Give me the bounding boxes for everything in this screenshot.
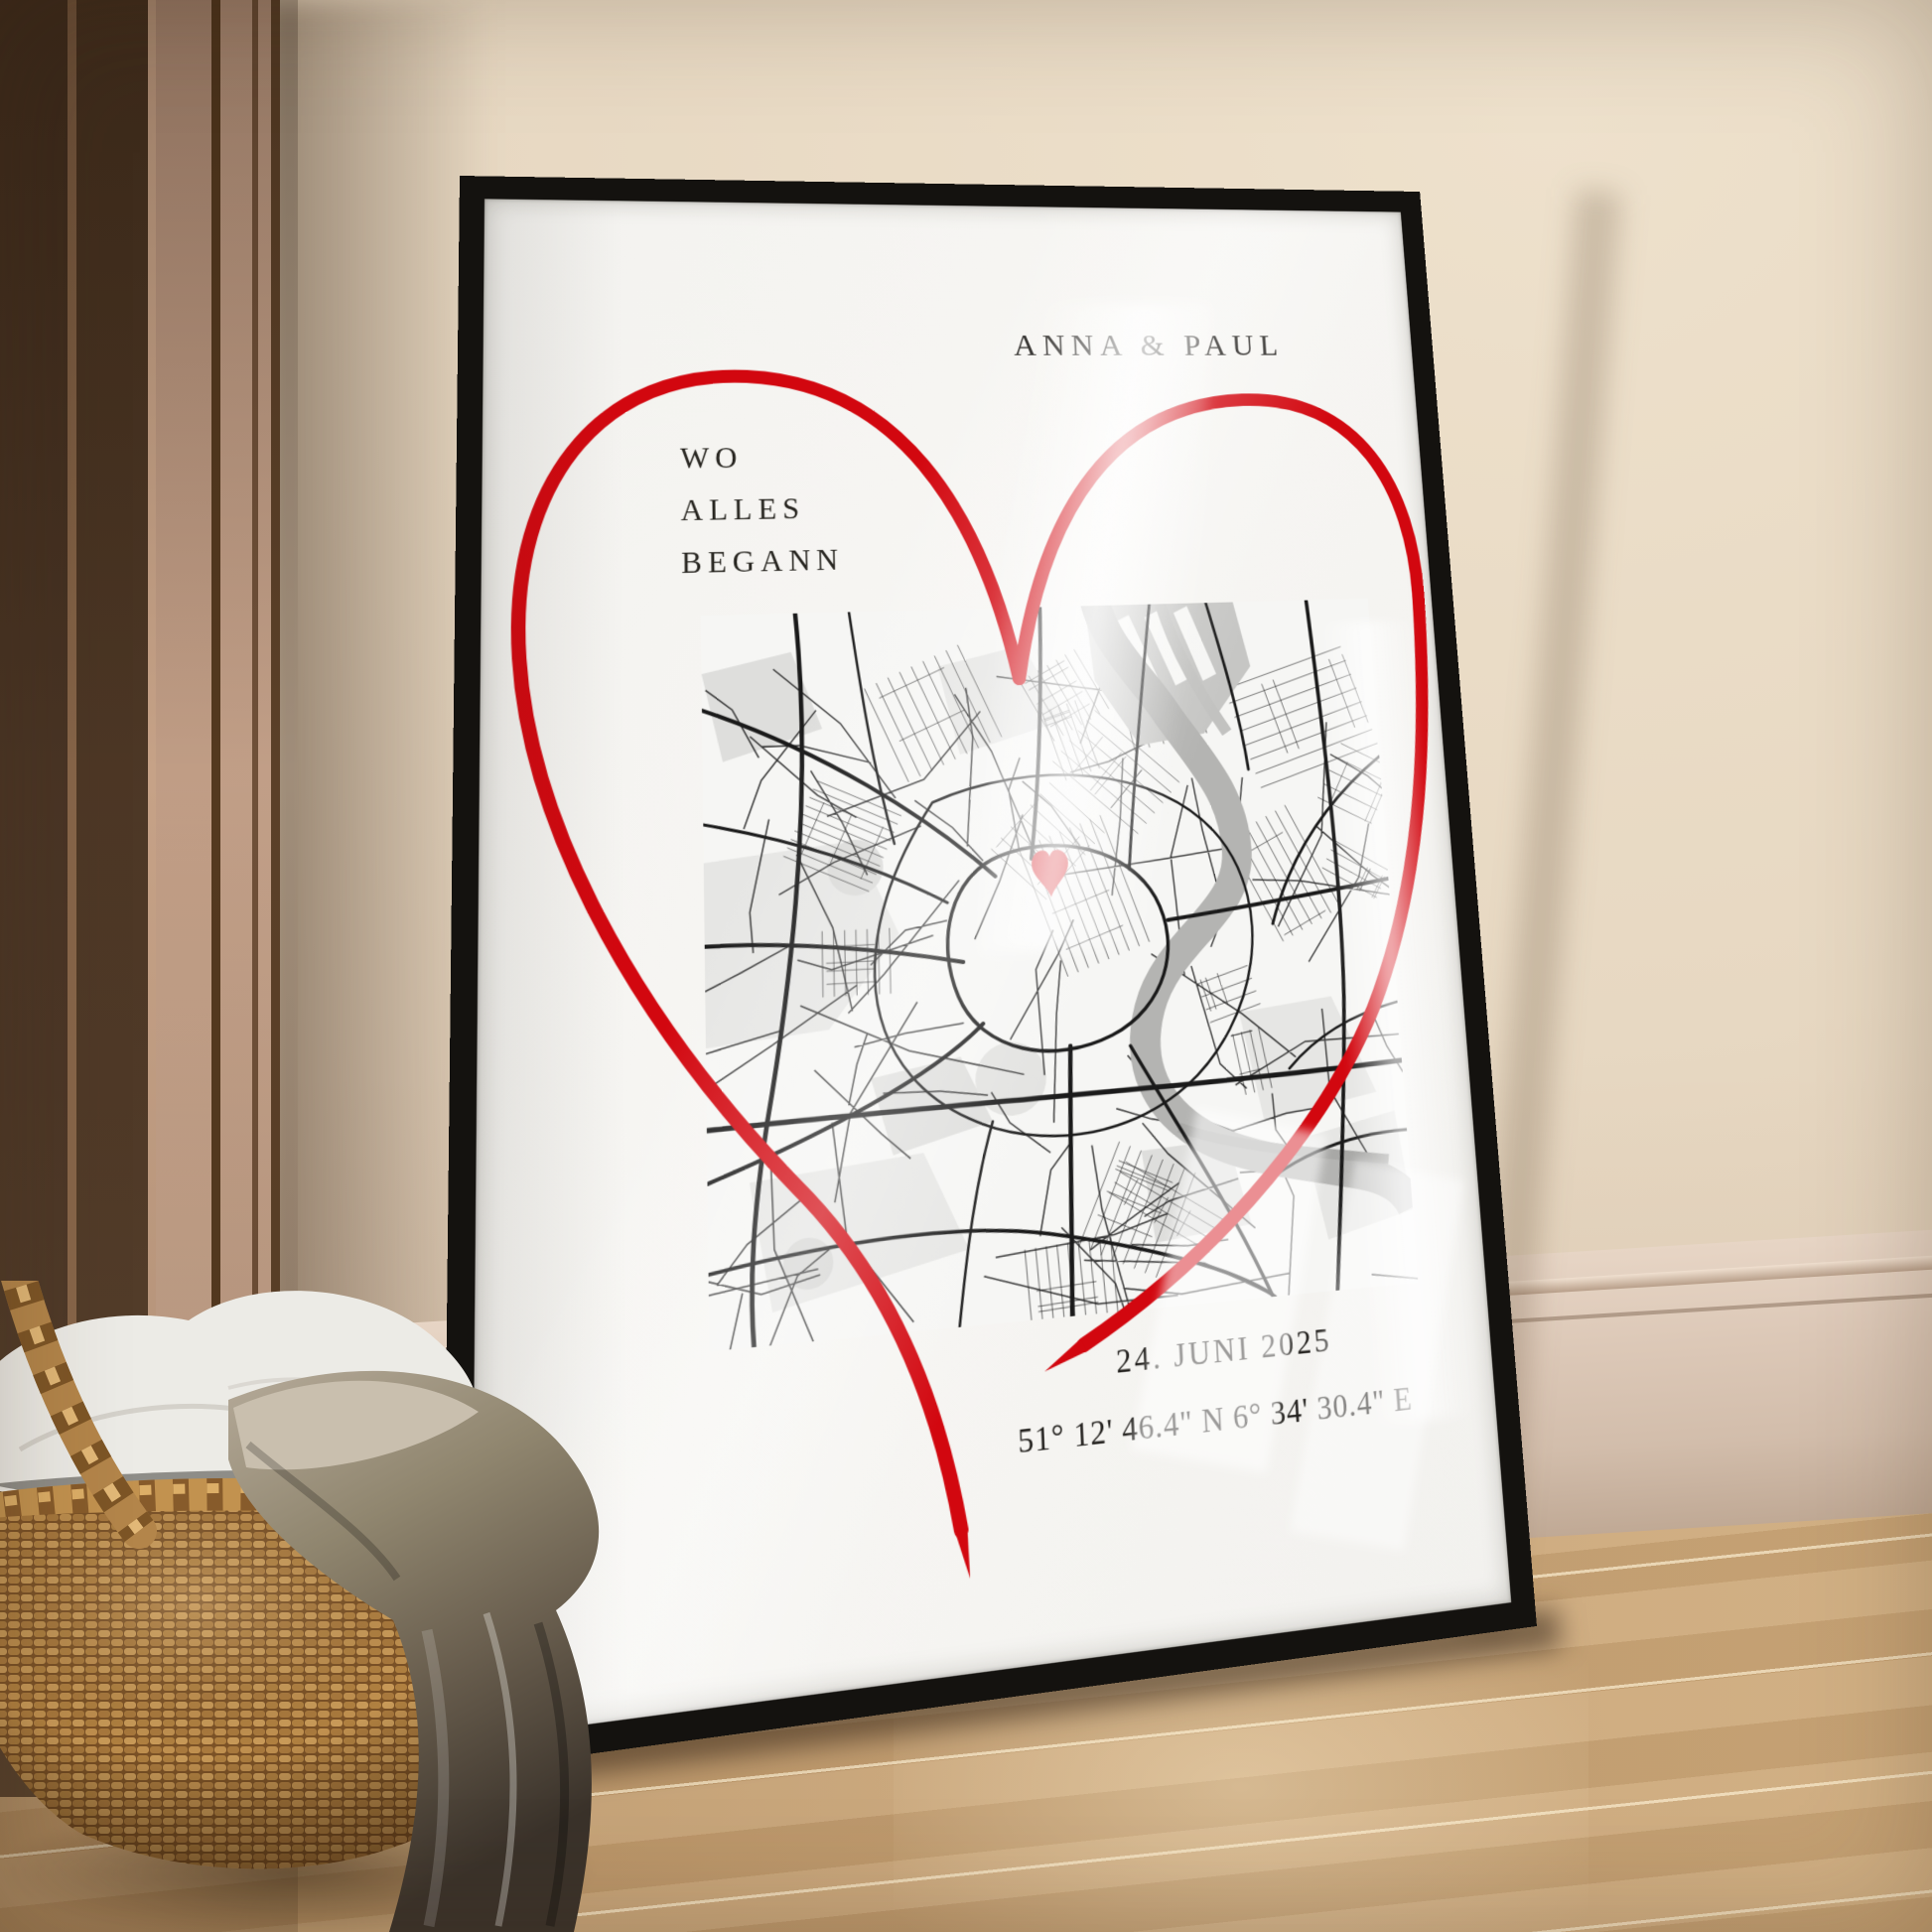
room-scene: ANNA & PAUL WO ALLES BEGANN 24. JUNI 202… [0,0,1932,1932]
laundry-basket [0,1281,685,1932]
